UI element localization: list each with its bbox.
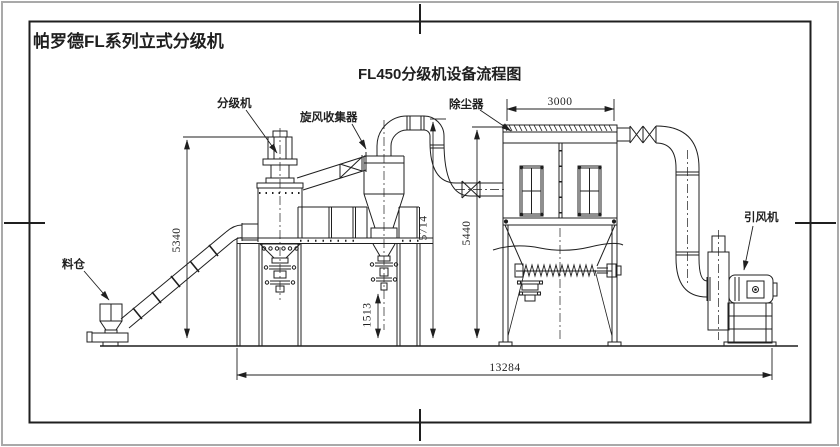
dim-text-1513: 1513 bbox=[362, 303, 374, 328]
top-serration bbox=[504, 125, 612, 131]
access-door-right bbox=[578, 166, 601, 216]
fan-drawing bbox=[656, 126, 777, 346]
feed-bin-leader bbox=[84, 271, 109, 300]
overhead-duct-drawing bbox=[377, 116, 505, 198]
dim-text-5714: 5714 bbox=[418, 216, 430, 241]
feed-bin-label: 料仓 bbox=[62, 257, 85, 271]
cyclone-drawing bbox=[364, 120, 404, 330]
fan-leader bbox=[744, 226, 753, 270]
access-door-left bbox=[520, 166, 543, 216]
classifier-label: 分级机 bbox=[217, 96, 252, 110]
support-platform-drawing bbox=[237, 207, 433, 346]
flow-diagram-canvas: 帕罗德FL系列立式分级机 FL450分级机设备流程图 分级机 旋风收集器 除尘器… bbox=[0, 0, 840, 447]
collector-outlet-flange bbox=[617, 126, 656, 143]
dim-text-5440: 5440 bbox=[461, 221, 473, 246]
drawing-title: FL450分级机设备流程图 bbox=[358, 65, 521, 83]
dust-collector-leader bbox=[480, 110, 511, 131]
fan-stand bbox=[728, 303, 772, 343]
platform-legs bbox=[237, 244, 420, 347]
filter-wave-line bbox=[493, 243, 623, 250]
dim-text-13284: 13284 bbox=[489, 362, 520, 374]
collector-rotary-valve bbox=[525, 295, 535, 301]
conveyor-flange-ticks bbox=[133, 245, 218, 319]
cyclone-leader bbox=[352, 124, 366, 149]
induced-draft-fan-label: 引风机 bbox=[744, 210, 779, 224]
sheet-title: 帕罗德FL系列立式分级机 bbox=[33, 31, 224, 51]
feed-bin-drawing bbox=[87, 304, 128, 346]
classifier-drawing bbox=[257, 128, 366, 300]
dim-text-3000: 3000 bbox=[548, 96, 573, 108]
classifier-to-cyclone-duct bbox=[297, 152, 366, 190]
dimension-5714 bbox=[430, 119, 446, 338]
classifier-leader bbox=[246, 110, 277, 153]
drawing-sheet: 帕罗德FL系列立式分级机 FL450分级机设备流程图 分级机 旋风收集器 除尘器… bbox=[0, 0, 840, 447]
dimension-5440 bbox=[472, 127, 506, 338]
dust-collector-label: 除尘器 bbox=[449, 97, 484, 111]
cyclone-collector-label: 旋风收集器 bbox=[299, 110, 358, 124]
dust-collector-drawing bbox=[493, 125, 656, 346]
dim-text-5340: 5340 bbox=[171, 228, 183, 253]
fan-housing bbox=[729, 275, 773, 303]
